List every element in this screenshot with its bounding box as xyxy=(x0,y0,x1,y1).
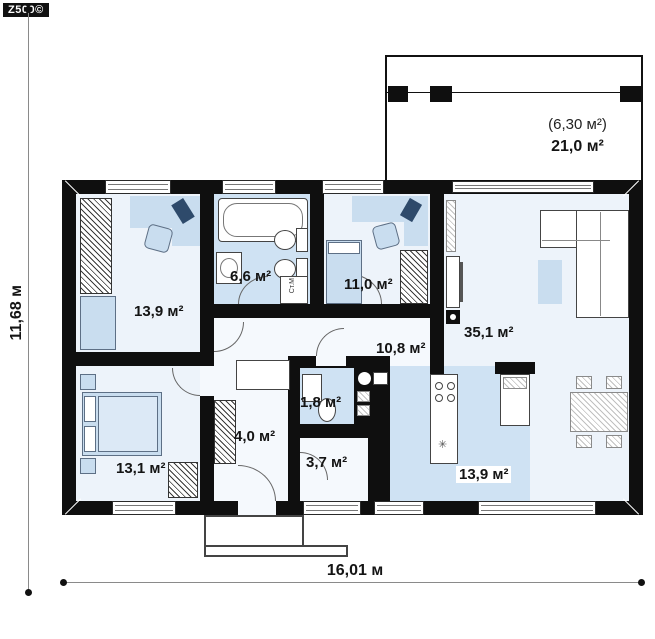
wall xyxy=(214,304,238,318)
tv-cabinet xyxy=(446,256,460,308)
room-label-pantry: 3,7 м² xyxy=(306,454,347,471)
dimension-line-left xyxy=(28,9,29,593)
console-table xyxy=(236,360,290,390)
window-pantry xyxy=(303,501,361,515)
desk xyxy=(404,222,428,246)
wall xyxy=(310,194,324,318)
electric-panel xyxy=(357,405,370,416)
terrace-area-secondary: (6,30 м²) xyxy=(520,116,635,133)
dining-chair xyxy=(576,435,592,448)
dimension-dot xyxy=(25,589,32,596)
wardrobe xyxy=(80,198,112,294)
wall xyxy=(200,396,214,501)
bed-pillow xyxy=(84,426,96,452)
dining-table xyxy=(570,392,628,432)
wall xyxy=(382,304,430,318)
kitchen-sink-symbol: ✳ xyxy=(438,438,447,451)
washing-machine-label: Ст.М xyxy=(289,278,296,293)
dimension-dot xyxy=(638,579,645,586)
meter-box xyxy=(373,372,388,385)
floor-plan: Z500© 11,68 м 16,01 м (6,30 м²) 21,0 м² xyxy=(0,0,655,639)
wall xyxy=(288,480,300,501)
wall xyxy=(495,362,535,374)
dimension-label-height: 11,68 м xyxy=(8,285,26,340)
wall xyxy=(76,352,214,366)
boiler-icon xyxy=(358,372,371,385)
fireplace-dot xyxy=(450,314,456,320)
terrace-roof-line xyxy=(386,92,642,93)
tv-icon xyxy=(460,262,463,302)
room-label-bedroom-top-mid: 11,0 м² xyxy=(344,276,393,293)
sofa-corner-side xyxy=(576,210,629,318)
front-door-opening xyxy=(238,501,276,515)
bed-pillow xyxy=(84,396,96,422)
bedroom3-door-gap xyxy=(200,366,214,396)
room-label-kitchen: 13,9 м² xyxy=(456,466,511,483)
bed-pillow xyxy=(328,242,360,254)
bed-mattress xyxy=(98,396,158,452)
dimension-label-width: 16,01 м xyxy=(295,562,415,580)
window-bathroom xyxy=(222,180,276,194)
wardrobe xyxy=(214,400,236,464)
nightstand xyxy=(80,374,96,390)
room-label-entry: 4,0 м² xyxy=(234,428,275,445)
toilet-tank xyxy=(296,228,308,252)
room-label-bathroom: 6,6 м² xyxy=(230,268,271,285)
window-living-terrace xyxy=(452,181,594,193)
fridge-vent xyxy=(503,377,527,389)
window-bedroom-bottom-left xyxy=(112,501,176,515)
dimension-dot xyxy=(60,579,67,586)
wardrobe xyxy=(168,462,198,498)
sofa-cushion-line xyxy=(542,240,610,241)
bed-single xyxy=(80,296,116,350)
wall xyxy=(430,194,444,374)
room-label-hall: 10,8 м² xyxy=(376,340,425,357)
room-label-bedroom-bottom-left: 13,1 м² xyxy=(116,460,165,477)
wall xyxy=(300,356,316,368)
nightstand xyxy=(80,458,96,474)
wall xyxy=(288,424,390,438)
wardrobe xyxy=(400,250,428,304)
porch xyxy=(204,515,304,547)
window-bedroom-top-mid xyxy=(322,180,384,194)
dining-chair xyxy=(606,376,622,389)
electric-panel xyxy=(357,391,370,402)
terrace-pillar xyxy=(620,86,641,102)
window-dining xyxy=(478,501,596,515)
wall xyxy=(324,304,350,318)
dining-chair xyxy=(576,376,592,389)
coffee-table xyxy=(538,260,562,304)
room-label-living: 35,1 м² xyxy=(464,324,513,341)
terrace-pillar xyxy=(430,86,452,102)
dimension-line-bottom xyxy=(62,582,642,583)
porch-step xyxy=(204,545,348,557)
wall xyxy=(200,194,214,322)
sofa-cushion-line xyxy=(600,212,601,316)
radiator xyxy=(446,200,456,252)
room-label-bedroom-top-left: 13,9 м² xyxy=(134,303,183,320)
desk xyxy=(172,228,200,246)
window-bedroom-top-left xyxy=(105,180,171,194)
toilet-bowl xyxy=(274,230,296,250)
wall xyxy=(368,438,390,501)
dimension-dot xyxy=(25,6,32,13)
washing-machine: Ст.М xyxy=(280,276,308,304)
window-kitchen xyxy=(374,501,424,515)
terrace-pillar xyxy=(388,86,408,102)
dining-chair xyxy=(606,435,622,448)
terrace-area-label: 21,0 м² xyxy=(520,138,635,156)
room-label-wc: 1,8 м² xyxy=(300,394,341,411)
